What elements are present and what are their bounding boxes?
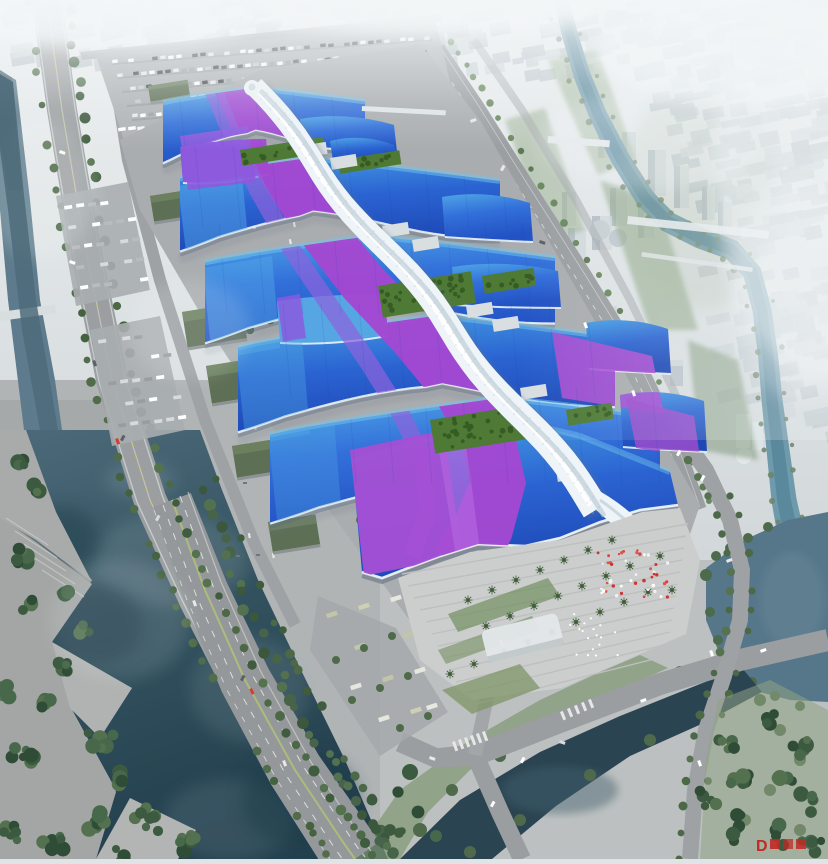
svg-text:D: D [756, 838, 768, 855]
